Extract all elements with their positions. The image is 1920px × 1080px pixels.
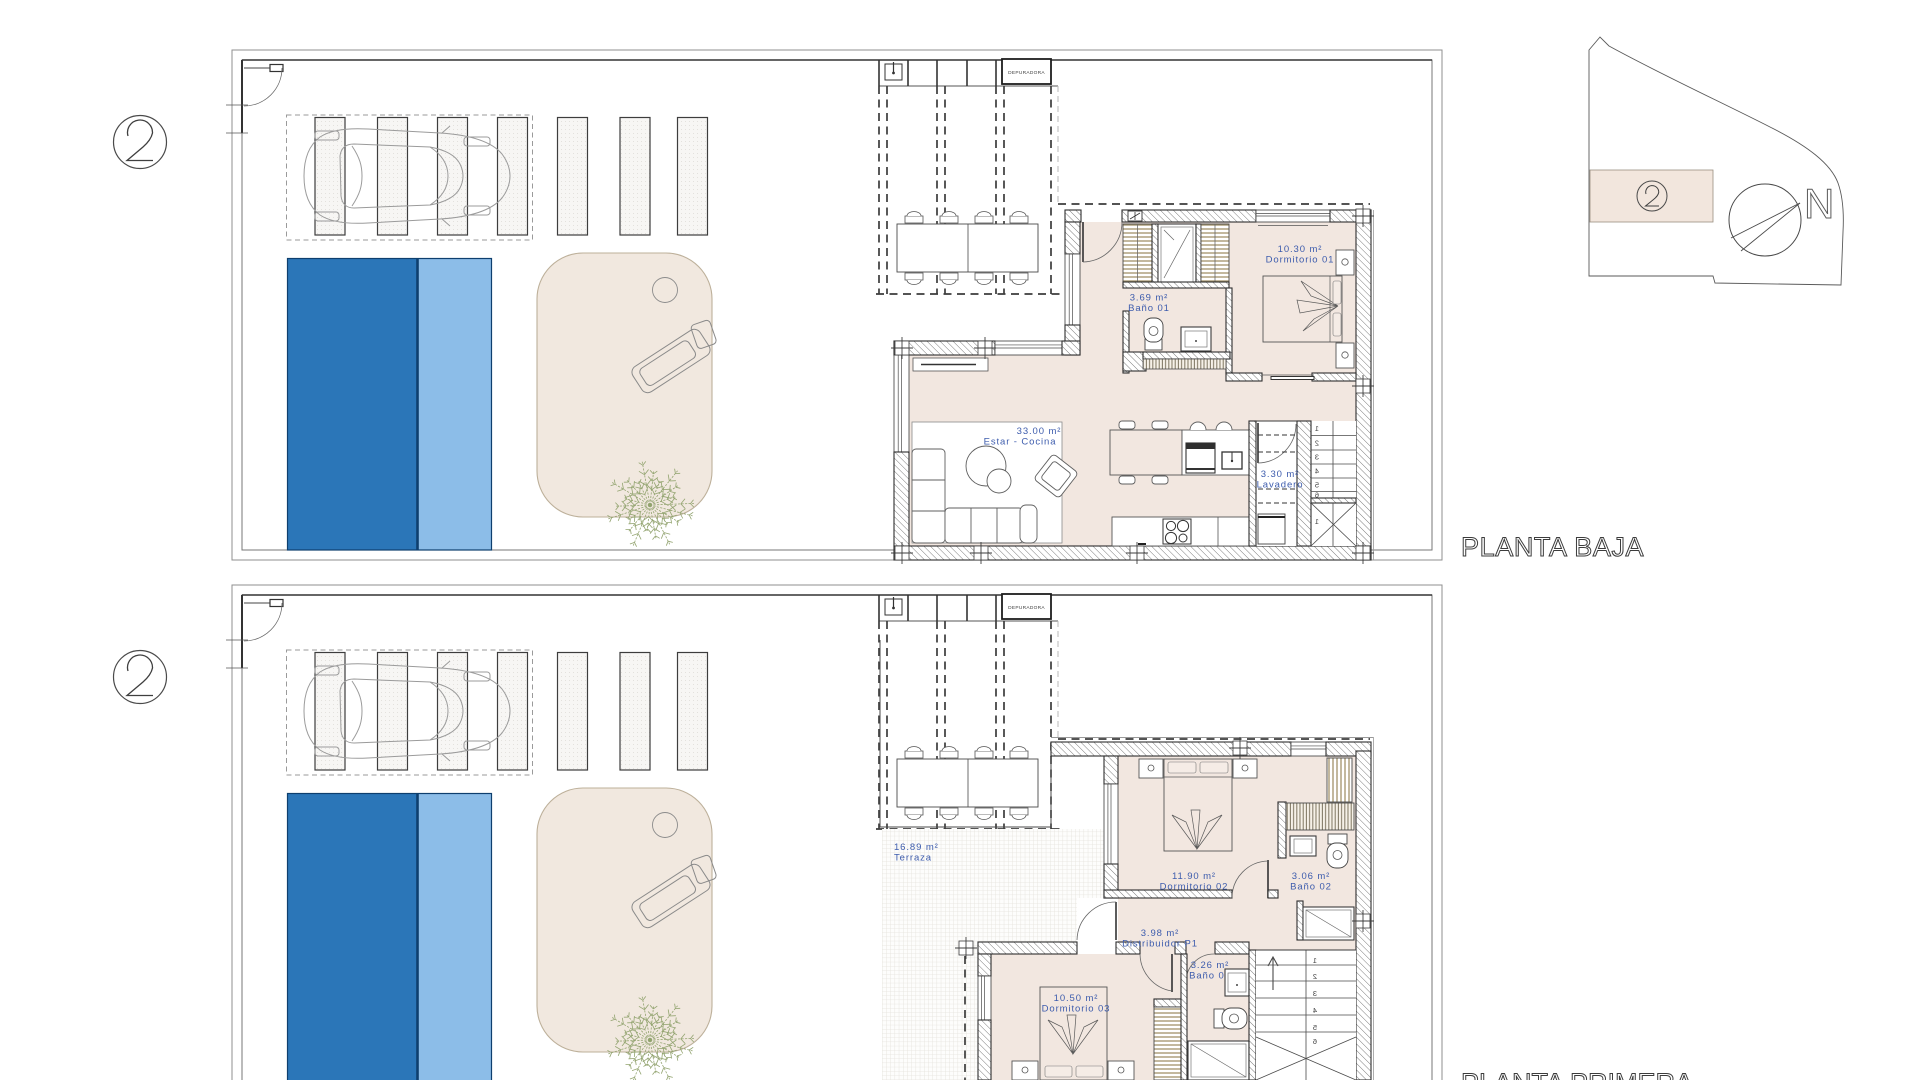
svg-text:Dormitorio 01: Dormitorio 01	[1266, 255, 1335, 266]
svg-text:33.00 m²: 33.00 m²	[1017, 426, 1062, 437]
svg-text:1: 1	[1313, 956, 1317, 965]
svg-text:10.30 m²: 10.30 m²	[1278, 244, 1323, 255]
svg-text:Terraza: Terraza	[894, 853, 932, 864]
svg-text:11.90 m²: 11.90 m²	[1172, 871, 1216, 882]
svg-text:Dormitorio 03: Dormitorio 03	[1042, 1004, 1111, 1015]
svg-text:16.89 m²: 16.89 m²	[894, 842, 939, 853]
svg-text:Lavadero: Lavadero	[1257, 480, 1304, 491]
svg-text:2: 2	[1313, 972, 1317, 981]
svg-text:3: 3	[1313, 989, 1317, 998]
svg-text:Baño 02: Baño 02	[1290, 882, 1332, 893]
svg-text:Estar - Cocina: Estar - Cocina	[984, 437, 1057, 448]
svg-text:Baño 01: Baño 01	[1128, 303, 1170, 314]
svg-text:Dormitorio 02: Dormitorio 02	[1160, 882, 1229, 893]
svg-text:2: 2	[1315, 439, 1319, 448]
svg-text:4: 4	[1313, 1006, 1317, 1015]
svg-text:3.98 m²: 3.98 m²	[1141, 928, 1180, 939]
svg-text:DEPURADORA: DEPURADORA	[1008, 605, 1045, 611]
svg-text:DEPURADORA: DEPURADORA	[1008, 70, 1045, 76]
svg-text:6: 6	[1313, 1037, 1317, 1046]
svg-text:5: 5	[1313, 1023, 1317, 1032]
svg-text:PLANTA PRIMERA: PLANTA PRIMERA	[1461, 1068, 1693, 1080]
svg-text:4: 4	[1315, 467, 1319, 476]
svg-text:1: 1	[1315, 424, 1319, 433]
svg-text:1: 1	[1315, 517, 1319, 526]
svg-text:PLANTA BAJA: PLANTA BAJA	[1461, 532, 1644, 562]
svg-text:3.26 m²: 3.26 m²	[1191, 960, 1230, 971]
svg-text:Distribuidor P1: Distribuidor P1	[1122, 939, 1198, 950]
svg-text:3.06 m²: 3.06 m²	[1292, 871, 1331, 882]
svg-text:3.69 m²: 3.69 m²	[1130, 293, 1169, 304]
svg-text:3.30 m²: 3.30 m²	[1261, 469, 1300, 480]
svg-text:5: 5	[1315, 481, 1319, 490]
svg-text:N: N	[1804, 180, 1834, 227]
svg-text:3: 3	[1315, 453, 1319, 462]
svg-text:10.50 m²: 10.50 m²	[1054, 993, 1099, 1004]
